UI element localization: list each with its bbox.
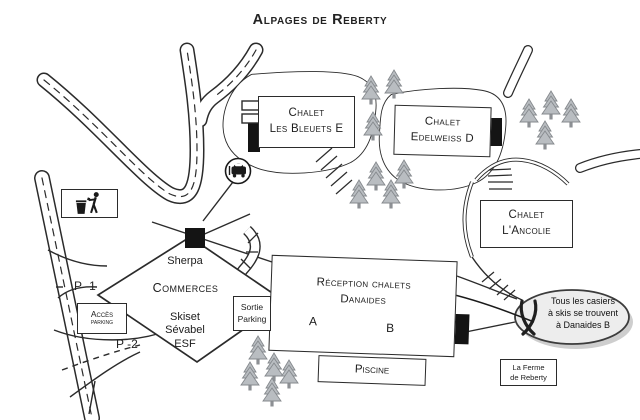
shop-esf-label: ESF bbox=[149, 338, 221, 350]
ferme-line1: La Ferme bbox=[512, 363, 544, 373]
piscine-label: Piscine bbox=[355, 362, 390, 379]
litter-disposal-icon bbox=[69, 191, 111, 216]
reception-line2: Danaides bbox=[340, 292, 386, 309]
wing-a-label: A bbox=[309, 314, 318, 330]
note-line3: à Danaides B bbox=[538, 320, 628, 332]
ferme-line2: de Reberty bbox=[510, 373, 547, 383]
chalet-les-bleuets-line2: Les Bleuets E bbox=[270, 122, 344, 138]
acces-line1: Accès bbox=[91, 309, 113, 320]
reception-line1: Réception chalets bbox=[316, 276, 411, 295]
note-line1: Tous les casiers bbox=[538, 296, 628, 308]
litter-sign-box bbox=[61, 189, 118, 218]
sortie-parking-box: Sortie Parking bbox=[233, 296, 271, 331]
resort-map: Alpages de Reberty Chalet Les Bleuets E … bbox=[0, 0, 640, 420]
note-line2: à skis se trouvent bbox=[538, 308, 628, 320]
chalet-edelweiss-line1: Chalet bbox=[425, 115, 461, 131]
ski-lockers-note: Tous les casiers à skis se trouvent à Da… bbox=[538, 296, 628, 332]
piscine-box: Piscine bbox=[318, 355, 427, 386]
acces-line2: parking bbox=[91, 319, 113, 328]
parking-level-1-label: P -1 bbox=[74, 279, 96, 293]
acces-parking-box: Accès parking bbox=[77, 303, 127, 334]
sortie-line1: Sortie bbox=[241, 302, 263, 313]
chalet-ancolie-line2: L'Ancolie bbox=[502, 224, 551, 240]
page-title: Alpages de Reberty bbox=[0, 12, 640, 28]
parking-level-2-label: P -2 bbox=[116, 337, 138, 351]
car-sign-icon bbox=[226, 159, 251, 184]
chalet-edelweiss-line2: Edelweiss D bbox=[410, 130, 474, 147]
chalet-ancolie-line1: Chalet bbox=[509, 208, 545, 224]
shop-sevabel-label: Sévabel bbox=[149, 324, 221, 336]
commerces-label: Commerces bbox=[128, 281, 243, 295]
wing-b-label: B bbox=[386, 320, 395, 336]
chalet-les-bleuets-box: Chalet Les Bleuets E bbox=[258, 96, 355, 148]
ferme-reberty-box: La Ferme de Reberty bbox=[500, 359, 557, 386]
reception-danaides-box: Réception chalets Danaides A B bbox=[268, 255, 457, 357]
shop-skiset-label: Skiset bbox=[152, 311, 218, 323]
shop-sherpa-label: Sherpa bbox=[150, 255, 220, 267]
sortie-line2: Parking bbox=[238, 314, 267, 325]
chalet-ancolie-box: Chalet L'Ancolie bbox=[480, 200, 573, 248]
chalet-les-bleuets-line1: Chalet bbox=[289, 106, 325, 122]
chalet-edelweiss-box: Chalet Edelweiss D bbox=[393, 105, 491, 158]
